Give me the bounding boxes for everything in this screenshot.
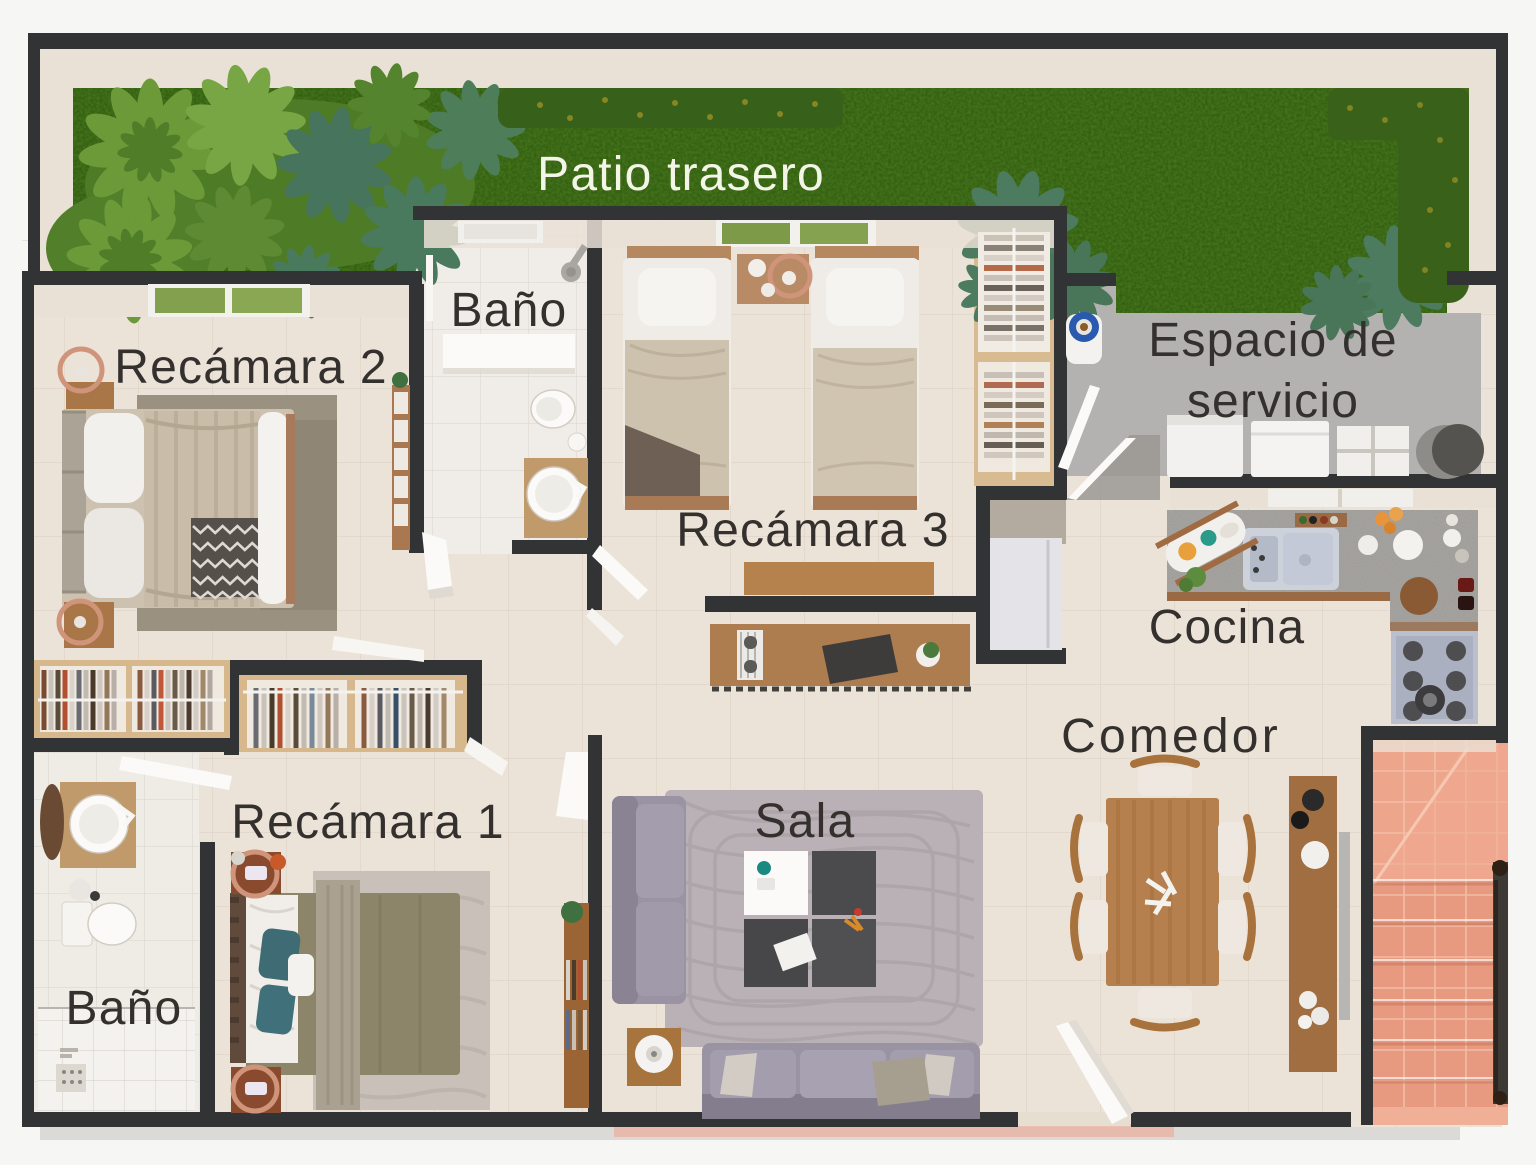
svg-text:Baño: Baño xyxy=(66,982,183,1035)
svg-text:Comedor: Comedor xyxy=(1061,710,1281,763)
svg-text:Cocina: Cocina xyxy=(1149,601,1306,654)
svg-text:Baño: Baño xyxy=(451,284,568,337)
svg-text:Recámara 2: Recámara 2 xyxy=(114,341,387,394)
svg-text:Patio trasero: Patio trasero xyxy=(537,148,825,201)
svg-text:servicio: servicio xyxy=(1187,375,1359,428)
svg-text:Recámara 3: Recámara 3 xyxy=(676,504,949,557)
svg-text:Recámara 1: Recámara 1 xyxy=(231,796,504,849)
svg-text:Espacio de: Espacio de xyxy=(1148,314,1398,367)
svg-text:Sala: Sala xyxy=(755,795,856,848)
